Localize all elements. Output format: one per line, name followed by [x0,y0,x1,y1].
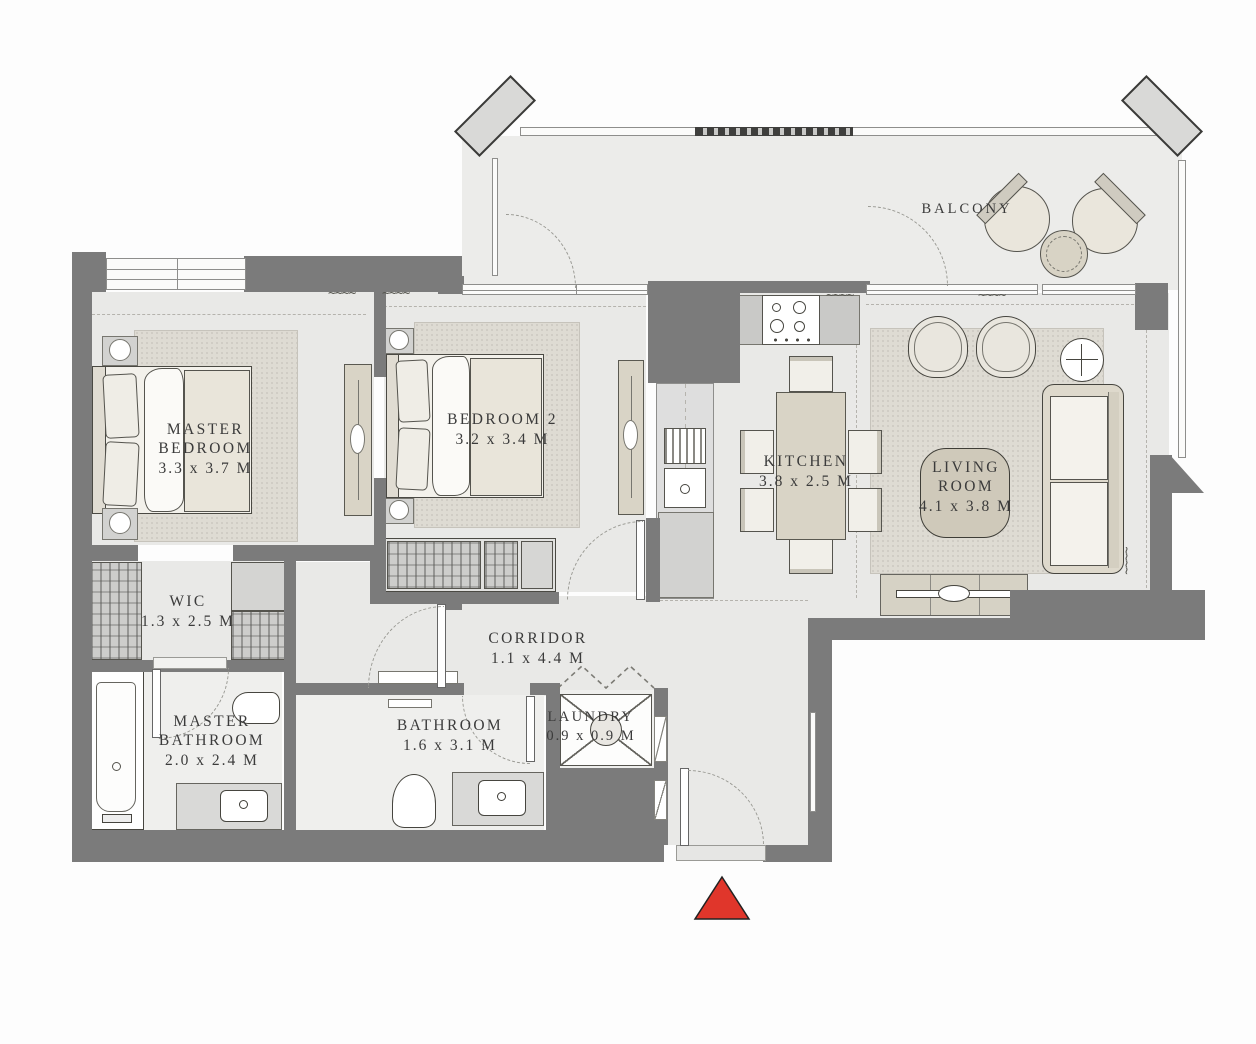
wall-kitchen-block [648,281,740,383]
room-dims: 3.2 x 3.4 M [420,430,585,449]
wall [556,768,654,832]
room-name: CORRIDOR [463,629,613,648]
armchair-inner [914,322,962,372]
balcony-table-inner [1046,236,1082,272]
entry-shaft [654,716,667,762]
wall-corner-block [1135,283,1168,330]
room-name: KITCHEN [733,452,879,471]
dashed-line [92,314,366,315]
living-balcony-window [1042,284,1136,295]
wall-break-symbol: ~~~~ [1122,546,1130,573]
bathtub-drain [112,762,121,771]
balcony-right-glass [1178,160,1186,458]
room-name: BEDROOM 2 [420,410,585,429]
label-kitchen: KITCHEN 3.8 x 2.5 M [733,452,879,491]
burner [794,321,805,332]
room-dims: 1.1 x 4.4 M [463,649,613,668]
room-name: WIC [123,592,253,611]
floor-plan-canvas: ~~~~ ~~~~ ~~~~ ~~~~ ~~~~ MASTER BEDROOM … [0,0,1256,1044]
label-wic: WIC 1.3 x 2.5 M [123,592,253,631]
wall [374,592,559,604]
room-name: MASTER BATHROOM [142,712,282,750]
sofa-cushion [1050,482,1108,566]
fridge [658,512,714,598]
burner [793,301,806,314]
burner [772,303,781,312]
wall [438,276,464,294]
label-balcony: BALCONY [900,201,1034,219]
label-corridor: CORRIDOR 1.1 x 4.4 M [463,629,613,668]
room-dims: 3.3 x 3.7 M [118,459,293,478]
wall-entry-left [654,688,668,845]
wall [763,845,808,862]
nightstand-lamp [389,330,409,350]
label-master-bathroom: MASTER BATHROOM 2.0 x 2.4 M [142,712,282,771]
room-name: LIVING ROOM [903,458,1029,496]
sofa-back [1108,392,1119,568]
faucet [239,800,248,809]
wall-living-bottom-right [1010,590,1205,640]
entrance-triangle [692,874,752,922]
room-dims: 0.9 x 0.9 M [532,728,650,746]
armchair-inner [982,322,1030,372]
entry-shaft [654,780,667,820]
stove-knobs [770,338,812,342]
wall [92,545,138,561]
room-dims: 3.8 x 2.5 M [733,472,879,491]
room-dims: 4.1 x 3.8 M [903,497,1029,516]
room-dims: 1.6 x 3.1 M [380,736,520,755]
wall-living-bottom [808,618,1010,640]
wall-break-symbol: ~~~~ [382,290,409,298]
dashed-line [1146,300,1147,588]
balcony-trellis [695,127,853,136]
wall-partition [374,292,386,377]
room-name: BATHROOM [380,716,520,735]
wardrobe-section [387,541,481,589]
wall-break-symbol: ~~~~ [978,292,1005,300]
sink-drain [680,484,690,494]
room-name: MASTER BEDROOM [118,420,293,458]
room-dims: 2.0 x 2.4 M [142,751,282,770]
label-bedroom2: BEDROOM 2 3.2 x 3.4 M [420,410,585,449]
entry-threshold [676,845,766,861]
dish-rack [664,428,706,464]
wall-bottom [72,830,664,862]
tv-console-handle [938,585,970,602]
entry-wall-panel [810,712,816,812]
dining-chair [789,538,833,574]
wardrobe-section [521,541,553,589]
dining-chair [740,488,774,532]
wall [646,518,660,602]
wall-left [72,252,92,862]
bathtub-faucet [102,814,132,823]
label-living-room: LIVING ROOM 4.1 x 3.8 M [903,458,1029,517]
dining-chair [848,488,882,532]
nightstand-lamp [109,512,131,534]
label-laundry: LAUNDRY 0.9 x 0.9 M [532,709,650,746]
wall [233,545,376,561]
room-dims: 1.3 x 2.5 M [123,612,253,631]
dashed-line [660,600,808,601]
wall-living-right [1150,455,1172,595]
wall-angled [1170,455,1204,493]
nightstand-lamp [109,339,131,361]
room-name: BALCONY [900,201,1034,219]
dining-chair [789,356,833,392]
burner [770,319,784,333]
sofa-cushion [1050,396,1108,480]
label-bathroom: BATHROOM 1.6 x 3.1 M [380,716,520,755]
shower-shelf [388,699,432,708]
door-handle [623,420,638,450]
floor-lamp-cross [1081,344,1082,376]
faucet [497,792,506,801]
room-name: LAUNDRY [532,709,650,727]
label-master-bedroom: MASTER BEDROOM 3.3 x 3.7 M [118,420,293,479]
floor-lamp [1060,338,1104,382]
window-master-bedroom [106,258,246,290]
door-handle [350,424,365,454]
dashed-line [384,306,646,307]
bathtub-inner [96,682,136,812]
wall-break-symbol: ~~~~ [826,292,853,300]
nightstand-lamp [389,500,409,520]
wall-break-symbol: ~~~~ [328,290,355,298]
dashed-line [866,304,1134,305]
wardrobe-section [484,541,518,589]
floor-lamp-cross [1066,359,1098,360]
toilet-bathroom [392,774,436,828]
balcony-left-glass [492,158,498,276]
